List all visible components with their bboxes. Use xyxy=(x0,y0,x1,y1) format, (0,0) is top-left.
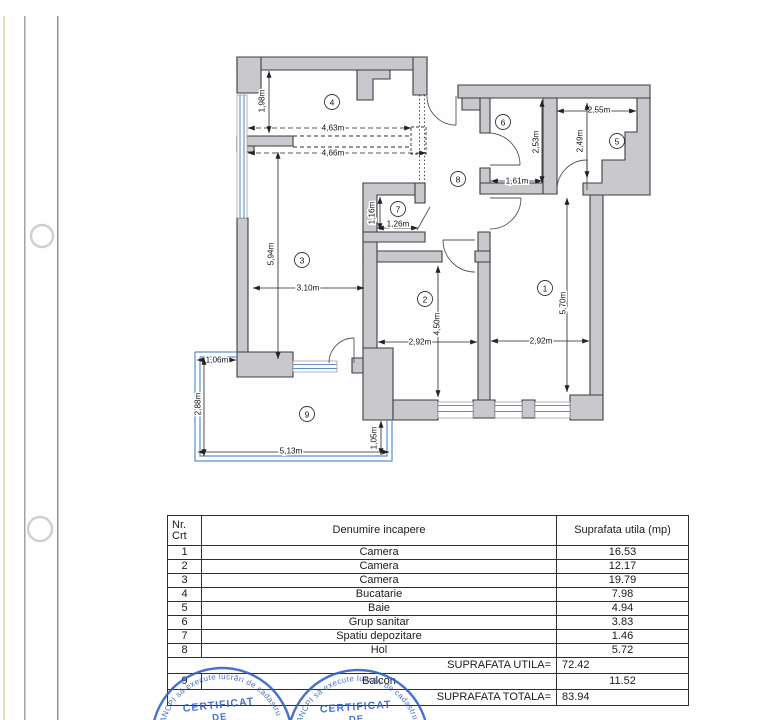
room-number-label: 5 xyxy=(615,137,620,147)
dimension: 2,49m xyxy=(576,103,588,178)
dimension-label: 4,63m xyxy=(322,124,345,133)
room-number-label: 8 xyxy=(456,175,461,185)
dimension: 2,55m xyxy=(557,106,636,115)
room-number-label: 7 xyxy=(396,205,401,215)
dimension-label: 1,61m xyxy=(506,177,529,186)
cell-name: Hol xyxy=(202,644,557,658)
table-total-row: SUPRAFATA TOTALA=83.94 xyxy=(168,690,689,706)
room-number-label: 4 xyxy=(330,98,335,108)
scan-artifact-line xyxy=(24,16,26,720)
cell-name: Baie xyxy=(202,602,557,616)
cell-name: Spatiu depozitare xyxy=(202,630,557,644)
total-label: SUPRAFATA TOTALA= xyxy=(168,690,557,706)
cell-area: 3.83 xyxy=(557,616,689,630)
dimension: 4,50m xyxy=(433,266,442,397)
dimension-label: 2,53m xyxy=(532,130,541,153)
cell-area: 12.17 xyxy=(557,560,689,574)
table-row: 7Spatiu depozitare1.46 xyxy=(168,630,689,644)
total-value: 72.42 xyxy=(557,658,689,674)
cell-nr: 1 xyxy=(168,546,202,560)
header-area: Suprafata utila (mp) xyxy=(557,516,689,546)
dimension: 2,92m xyxy=(378,338,477,347)
scan-artifact-line xyxy=(57,16,59,720)
room-number-label: 1 xyxy=(543,284,548,294)
dimension-label: 2,92m xyxy=(530,337,553,346)
table-row: 9Balcon11.52 xyxy=(168,674,689,690)
table-row: 4Bucatarie7.98 xyxy=(168,588,689,602)
dimension: 5,94m xyxy=(267,152,279,359)
cell-area: 5.72 xyxy=(557,644,689,658)
header-nr: Nr. Crt xyxy=(168,516,202,546)
cell-name: Camera xyxy=(202,574,557,588)
area-table: Nr. Crt Denumire incapere Suprafata util… xyxy=(167,515,689,706)
cell-area: 11.52 xyxy=(557,674,689,690)
dimension: 4,63m xyxy=(248,124,411,133)
dimension-label: 4,66m xyxy=(322,149,345,158)
room-number: 1 xyxy=(538,281,553,296)
dimension: 1,26m xyxy=(377,220,418,229)
table-row: 8Hol5.72 xyxy=(168,644,689,658)
dimension-label: 1,06m xyxy=(206,356,229,365)
dimension-label: 4,50m xyxy=(433,312,442,335)
dimension-label: 2,55m xyxy=(588,106,611,115)
dimension-label: 2,92m xyxy=(409,338,432,347)
room-number: 2 xyxy=(418,292,433,307)
total-value: 83.94 xyxy=(557,690,689,706)
room-number: 7 xyxy=(391,202,406,217)
room-number: 9 xyxy=(300,407,315,422)
cell-nr: 7 xyxy=(168,630,202,644)
table-header-row: Nr. Crt Denumire incapere Suprafata util… xyxy=(168,516,689,546)
cell-nr: 3 xyxy=(168,574,202,588)
table-row: 1Camera16.53 xyxy=(168,546,689,560)
dashed-lines xyxy=(293,95,426,183)
dimension-label: 2,88m xyxy=(194,392,203,415)
cell-area: 16.53 xyxy=(557,546,689,560)
table-row: 6Grup sanitar3.83 xyxy=(168,616,689,630)
room-number-label: 3 xyxy=(300,256,305,266)
dimension: 5,70m xyxy=(559,198,568,392)
punch-hole xyxy=(31,225,53,247)
dimension-label: 3,10m xyxy=(297,284,320,293)
table-row: 5Baie4.94 xyxy=(168,602,689,616)
room-number: 6 xyxy=(496,115,511,130)
dimension-label: 5,13m xyxy=(280,447,303,456)
dimension: 1,05m xyxy=(370,421,382,455)
room-number-label: 6 xyxy=(501,118,506,128)
dimension-label: 1,98m xyxy=(258,89,267,112)
cell-area: 4.94 xyxy=(557,602,689,616)
cell-nr: 6 xyxy=(168,616,202,630)
cell-area: 1.46 xyxy=(557,630,689,644)
dimension-label: 1,05m xyxy=(370,426,379,449)
cell-area: 7.98 xyxy=(557,588,689,602)
dimension: 1,16m xyxy=(368,197,381,230)
scan-artifact-line xyxy=(3,16,5,720)
cell-name: Balcon xyxy=(202,674,557,690)
dimension: 3,10m xyxy=(253,284,364,293)
cell-name: Camera xyxy=(202,546,557,560)
room-number: 4 xyxy=(325,95,340,110)
total-label: SUPRAFATA UTILA= xyxy=(168,658,557,674)
scanned-document-page: 1,98m4,63m4,66m5,94m3,10m1,16m1,26m2,53m… xyxy=(0,0,774,720)
cell-name: Grup sanitar xyxy=(202,616,557,630)
dimension: 4,66m xyxy=(248,149,426,158)
room-number: 5 xyxy=(610,134,625,149)
dimension: 2,92m xyxy=(491,337,589,346)
table-total-row: SUPRAFATA UTILA=72.42 xyxy=(168,658,689,674)
cell-area: 19.79 xyxy=(557,574,689,588)
punch-hole xyxy=(28,517,52,541)
dimension: 5,13m xyxy=(198,447,389,456)
table-row: 3Camera19.79 xyxy=(168,574,689,588)
dimension-label: 2,49m xyxy=(576,129,585,152)
dimension-label: 1,26m xyxy=(387,220,410,229)
cell-name: Bucatarie xyxy=(202,588,557,602)
room-number-label: 2 xyxy=(423,295,428,305)
cell-nr: 4 xyxy=(168,588,202,602)
dimension: 2,53m xyxy=(532,100,543,183)
room-number: 8 xyxy=(451,172,466,187)
dimension-label: 5,94m xyxy=(267,242,276,265)
room-number-label: 9 xyxy=(305,410,310,420)
cell-nr: 5 xyxy=(168,602,202,616)
table-row: 2Camera12.17 xyxy=(168,560,689,574)
cell-nr: 9 xyxy=(168,674,202,690)
dimension-label: 1,16m xyxy=(368,201,377,224)
scan-artifacts xyxy=(3,16,59,720)
dimension-label: 5,70m xyxy=(559,291,568,314)
room-number: 3 xyxy=(295,253,310,268)
cell-nr: 8 xyxy=(168,644,202,658)
cell-nr: 2 xyxy=(168,560,202,574)
header-name: Denumire incapere xyxy=(202,516,557,546)
cell-name: Camera xyxy=(202,560,557,574)
